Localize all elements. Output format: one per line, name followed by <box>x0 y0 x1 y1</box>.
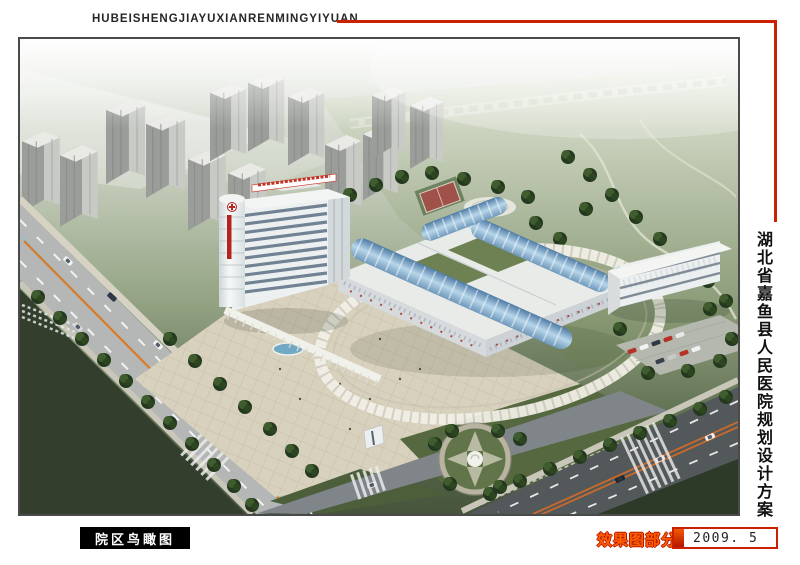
date-box: 2009. 5 <box>672 527 778 549</box>
side-rule-line <box>774 20 777 222</box>
aerial-rendering <box>20 39 738 514</box>
view-caption-box: 院区鸟瞰图 <box>80 527 190 549</box>
section-caption: 效果图部分 <box>597 529 677 550</box>
header-title: HUBEISHENGJIAYUXIANRENMINGYIYUAN <box>92 13 359 25</box>
date-text: 2009. 5 <box>693 531 758 546</box>
side-title: 湖北省嘉鱼县人民医院规划设计方案 <box>748 231 778 527</box>
vertical-red-sign <box>227 215 232 259</box>
mist-overlay <box>20 39 738 139</box>
date-marker-bar <box>674 529 684 547</box>
garden-sculpture <box>467 451 483 467</box>
presentation-board: HUBEISHENGJIAYUXIANRENMINGYIYUAN 湖北省嘉鱼县人… <box>0 0 800 565</box>
header-rule-line <box>337 20 777 23</box>
view-caption-label: 院区鸟瞰图 <box>95 529 175 548</box>
rendering-frame <box>18 37 740 516</box>
corner-cylinder <box>219 194 245 307</box>
red-cross-emblem <box>228 203 237 212</box>
